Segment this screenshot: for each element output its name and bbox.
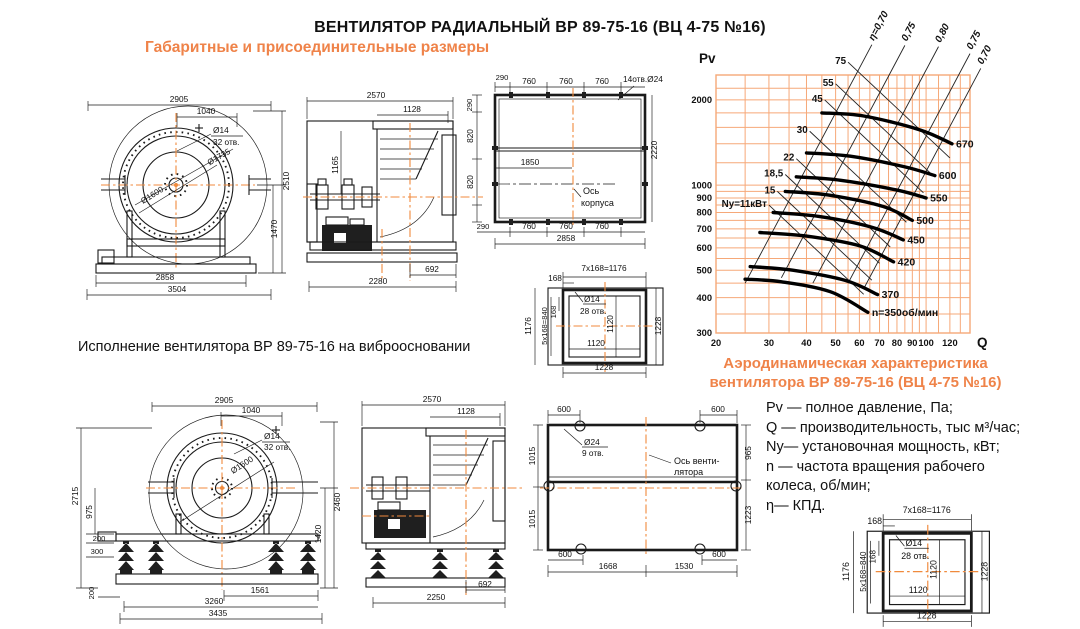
- y-tick-label: 800: [696, 208, 712, 218]
- dim-label: 5x168=840: [540, 307, 549, 345]
- chart-caption: Аэродинамическая характеристика вентилят…: [683, 354, 1028, 392]
- dim-label: 3435: [209, 608, 228, 618]
- dim-label: 692: [425, 264, 439, 274]
- dim-label: 2220: [649, 140, 659, 159]
- dim-label: 290: [477, 222, 490, 231]
- dim-label: Ø14: [905, 538, 922, 548]
- dim-label: 7x168=1176: [581, 263, 627, 273]
- vibro-plan-geometry: [540, 417, 744, 557]
- anchor-bolts: [492, 92, 648, 225]
- dim-label: 760: [559, 221, 573, 231]
- dim-label: Ø14: [264, 431, 280, 441]
- dim-label: 1850: [521, 157, 540, 167]
- dim-label: 965: [743, 446, 753, 460]
- x-tick-label: 50: [830, 338, 840, 348]
- dim-label: 14отв.Ø24: [623, 74, 663, 84]
- side-view-geometry: [303, 121, 483, 281]
- side-vibro-geometry: [350, 428, 524, 595]
- rpm-curve-label: 550: [930, 193, 948, 205]
- dim-label: 2858: [156, 272, 175, 282]
- dim-label: Ø24: [584, 437, 600, 447]
- efficiency-label: 0,75: [900, 20, 919, 43]
- dim-label: 200: [93, 534, 106, 543]
- legend-ny: Ny— установочная мощность, кВт;: [766, 438, 1066, 458]
- power-label: 18,5: [764, 169, 784, 180]
- dim-label: 1120: [587, 338, 605, 348]
- dim-label: 32 отв.: [264, 442, 290, 452]
- legend-n-1: n — частота вращения рабочего: [766, 458, 1066, 478]
- dim-label: 168: [867, 516, 882, 526]
- front-view-drawing: 2905 1040 Ø14 32 отв. Ø1735 Ø1600 2510 1…: [85, 71, 317, 305]
- y-tick-label: 700: [696, 224, 712, 234]
- y-tick-label: 300: [696, 328, 712, 338]
- dim-label: 2510: [281, 171, 291, 190]
- chart-legend: Pv — полное давление, Па; Q — производит…: [766, 399, 1066, 516]
- dim-label: 3504: [168, 284, 187, 294]
- base-plan-drawing: 290 760 760 760 14отв.Ø24 290 820 820 22…: [468, 72, 673, 264]
- side-view-vibro-drawing: 2570 1128 692 2250: [338, 385, 533, 629]
- dim-label: 1228: [979, 562, 989, 582]
- dim-label: 5x168=840: [859, 551, 868, 592]
- dim-label: 760: [595, 76, 609, 86]
- chart-caption-line2: вентилятора ВР 89-75-16 (ВЦ 4-75 №16): [683, 373, 1028, 392]
- efficiency-label: 0,70: [976, 44, 995, 67]
- x-tick-label: 30: [764, 338, 774, 348]
- x-tick-label: 80: [892, 338, 902, 348]
- dim-label: 760: [522, 76, 536, 86]
- y-tick-label: 900: [696, 193, 712, 203]
- power-label: 75: [835, 56, 846, 67]
- base-plan-geometry: [492, 88, 648, 228]
- dim-label: 2280: [369, 276, 388, 286]
- front-view-geometry: [96, 106, 271, 273]
- vibro-isolators: [118, 541, 316, 574]
- dim-label: 2570: [423, 394, 442, 404]
- dim-label: Ø1600: [229, 454, 256, 476]
- dim-label: 1015: [527, 446, 537, 465]
- y-tick-label: 600: [696, 243, 712, 253]
- dim-label: 1668: [599, 561, 618, 571]
- dim-label: 2715: [70, 486, 80, 505]
- dim-label: 2905: [170, 94, 189, 104]
- dim-label: 1470: [269, 219, 279, 238]
- x-tick-label: 60: [854, 338, 864, 348]
- power-label: 22: [783, 153, 794, 164]
- dim-label: 1228: [653, 316, 663, 335]
- dim-label: 9 отв.: [582, 448, 604, 458]
- dim-label: 600: [557, 404, 571, 414]
- x-tick-label: 70: [874, 338, 884, 348]
- y-tick-label: 2000: [691, 95, 712, 105]
- legend-n-2: колеса, об/мин;: [766, 477, 1066, 497]
- subtitle-dimensions: Габаритные и присоединительные размеры: [145, 39, 489, 57]
- dim-label: 1561: [251, 585, 270, 595]
- dim-label: 2570: [367, 90, 386, 100]
- rpm-curve-label: 450: [907, 234, 925, 246]
- efficiency-label: 0,75: [965, 29, 984, 52]
- rpm-curve-label: 600: [939, 170, 957, 182]
- dim-label: 760: [595, 221, 609, 231]
- rpm-curve-label: n=350об/мин: [872, 307, 938, 319]
- axis-caption: Ось венти-: [674, 456, 720, 466]
- dim-label: 820: [465, 129, 475, 143]
- x-tick-label: 20: [711, 338, 721, 348]
- dim-label: 1228: [595, 362, 614, 372]
- x-tick-label: 120: [942, 338, 958, 348]
- flange-dimensions: 7x168=1176 168 1176 5x168=840 168 Ø14 28…: [841, 505, 989, 627]
- axis-caption: лятора: [674, 467, 703, 477]
- dim-label: Ø14: [584, 294, 600, 304]
- dim-label: 1128: [403, 104, 421, 114]
- power-label: 30: [797, 125, 808, 136]
- dim-label: 1165: [330, 156, 340, 174]
- rpm-curve: [822, 113, 952, 144]
- dim-label: 168: [869, 550, 878, 564]
- rpm-curve-label: 420: [898, 256, 916, 268]
- dim-label: 820: [465, 175, 475, 189]
- dim-label: 168: [548, 273, 562, 283]
- y-tick-label: 400: [696, 293, 712, 303]
- chart-caption-line1: Аэродинамическая характеристика: [683, 354, 1028, 373]
- dim-label: 1420: [313, 524, 323, 543]
- x-tick-label: 100: [918, 338, 934, 348]
- side-view-drawing: 2570 1128 1165 692 2280: [298, 79, 488, 297]
- dim-label: 1015: [527, 509, 537, 528]
- y-axis-label: Pv: [699, 51, 716, 66]
- dim-label: 1228: [917, 610, 937, 620]
- dim-label: 975: [84, 505, 94, 519]
- power-label: 55: [823, 78, 834, 89]
- dim-label: 1120: [928, 560, 938, 579]
- dim-label: 2905: [215, 395, 234, 405]
- catalog-page: { "page": { "title": "ВЕНТИЛЯТОР РАДИАЛЬ…: [0, 0, 1080, 629]
- dim-label: 600: [711, 404, 725, 414]
- dim-label: 1040: [242, 405, 261, 415]
- aerodynamic-chart: 2030405060708090100120300400500600700800…: [693, 15, 1023, 350]
- dim-label: 3260: [205, 596, 224, 606]
- dim-label: 28 отв.: [901, 551, 929, 561]
- outlet-flange-drawing: 7x168=1176 168 1176 5x168=840 168 Ø14 28…: [528, 252, 673, 380]
- dim-label: 1128: [457, 406, 475, 416]
- dim-label: 168: [549, 306, 558, 319]
- dim-label: 600: [558, 549, 572, 559]
- rpm-curve-label: 500: [916, 215, 934, 227]
- caption-vibro: Исполнение вентилятора ВР 89-75-16 на ви…: [78, 339, 470, 355]
- power-label: Ny=11кВт: [722, 199, 767, 210]
- flange-dimensions: 7x168=1176 168 1176 5x168=840 168 Ø14 28…: [523, 263, 663, 378]
- rpm-curve-label: 370: [882, 289, 900, 301]
- dim-label: 2250: [427, 592, 446, 602]
- dim-label: 290: [496, 73, 509, 82]
- power-label: 15: [764, 185, 775, 196]
- dim-label: 290: [465, 99, 474, 112]
- x-axis-label: Q: [977, 335, 988, 350]
- legend-pv: Pv — полное давление, Па;: [766, 399, 1066, 419]
- vibro-base-plan-drawing: 600 600 1015 1015 965 1223 Ø24 9 отв. Ос…: [528, 393, 773, 595]
- x-tick-label: 40: [801, 338, 811, 348]
- axis-caption: Ось: [583, 186, 600, 196]
- dim-label: 1530: [675, 561, 694, 571]
- dim-label: 600: [712, 549, 726, 559]
- power-label: 45: [812, 94, 823, 105]
- vibro-isolators: [370, 549, 504, 578]
- legend-q: Q — производительность, тыс м³/час;: [766, 419, 1066, 439]
- y-tick-label: 1000: [691, 180, 712, 190]
- dim-label: 200: [87, 587, 96, 600]
- y-tick-label: 500: [696, 265, 712, 275]
- front-view-dimensions: 2905 1040 Ø14 32 отв. Ø1735 Ø1600 2510 1…: [87, 94, 291, 300]
- front-view-vibro-drawing: 2905 1040 Ø14 Ø1600 32 отв. Ø1600 2715 9…: [28, 382, 344, 629]
- dim-label: 760: [522, 221, 536, 231]
- dim-label: 28 отв.: [580, 306, 606, 316]
- dim-label: 1176: [523, 317, 533, 335]
- dim-label: 760: [559, 76, 573, 86]
- dim-label: 300: [91, 547, 104, 556]
- efficiency-label: 0,80: [933, 22, 952, 45]
- axis-caption: корпуса: [581, 198, 614, 208]
- dim-label: Ø14: [213, 125, 229, 135]
- dim-label: 1040: [197, 106, 216, 116]
- legend-eta: η— КПД.: [766, 497, 1066, 517]
- efficiency-label: η=0,70: [867, 9, 892, 42]
- dim-label: 1120: [909, 585, 928, 595]
- x-tick-label: 90: [907, 338, 917, 348]
- dim-label: 2858: [557, 233, 576, 243]
- dim-label: 1120: [605, 315, 615, 333]
- dim-label: 1223: [743, 505, 753, 524]
- dim-label: 692: [478, 579, 492, 589]
- dim-label: 1176: [841, 562, 851, 581]
- rpm-curve-label: 670: [956, 138, 974, 150]
